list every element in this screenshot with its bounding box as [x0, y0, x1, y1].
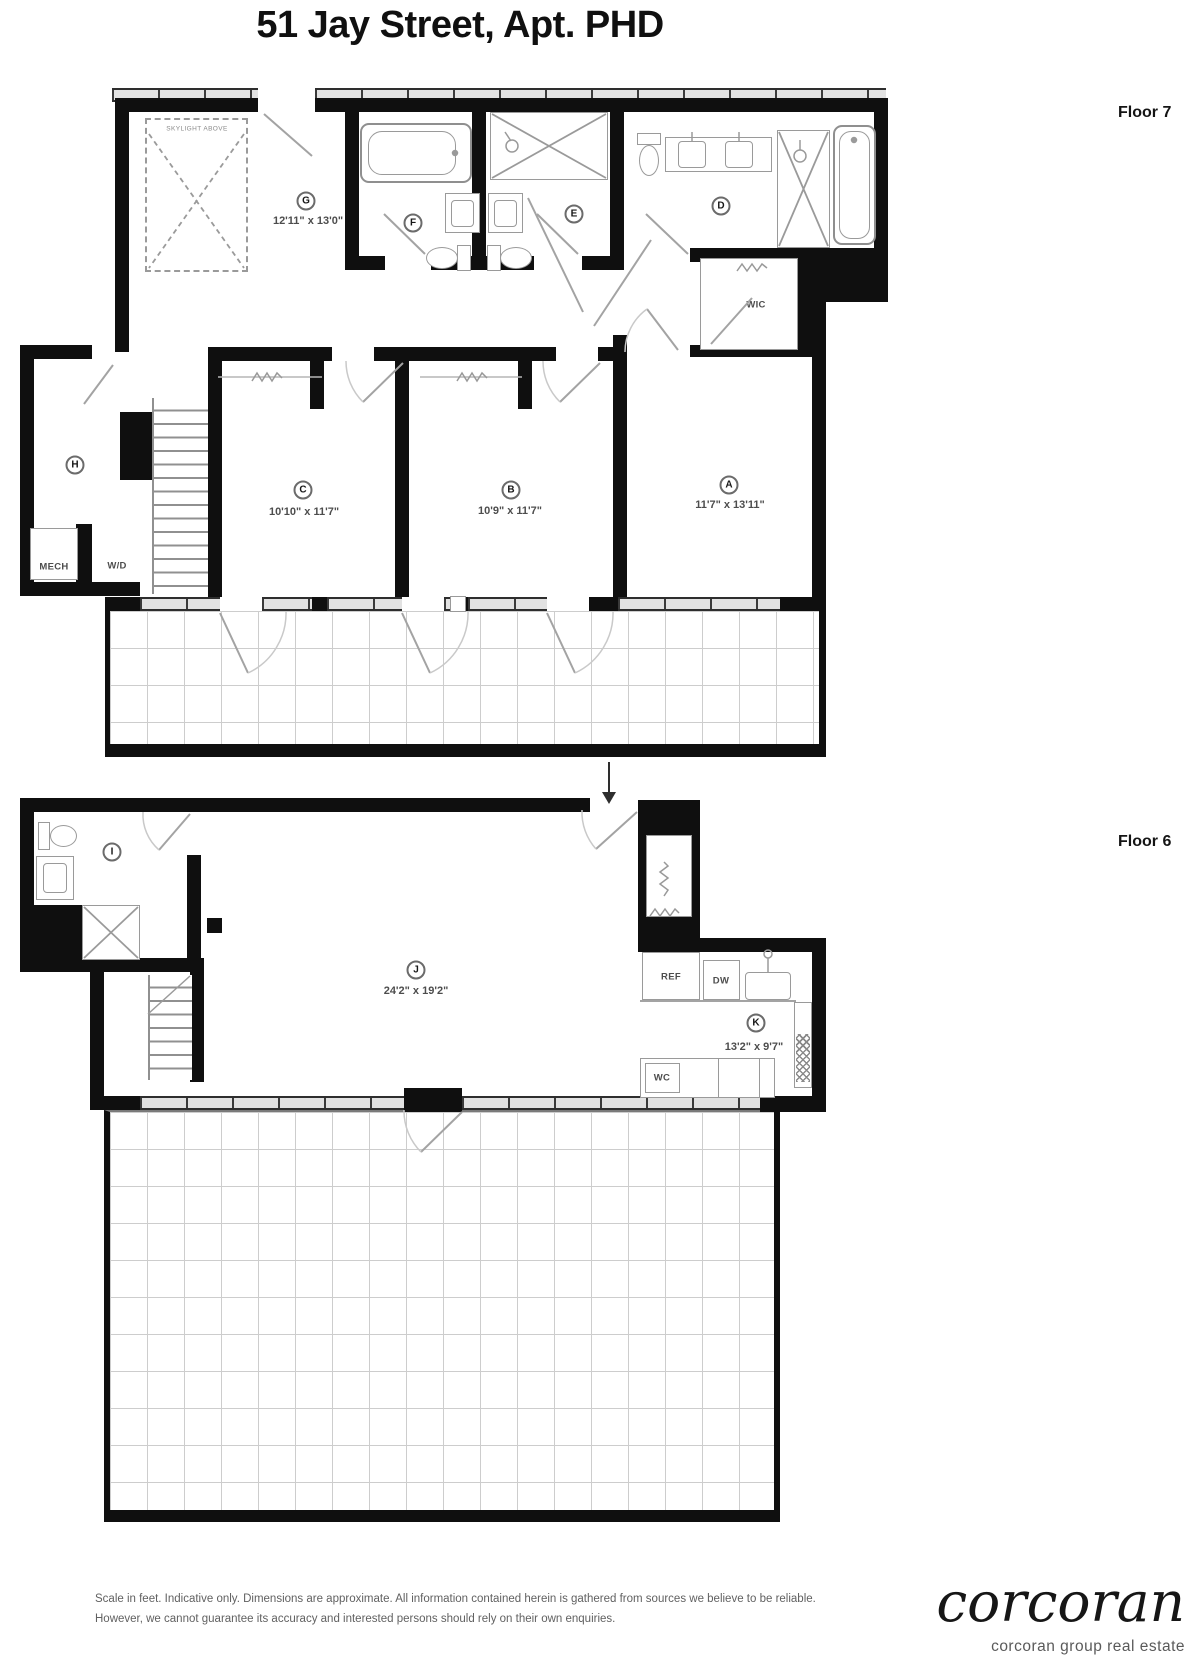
sink-basin [451, 200, 474, 227]
wc-label: WC [654, 1073, 670, 1084]
wall [395, 361, 409, 597]
room-tag-j: J [407, 961, 426, 980]
wall [692, 835, 700, 925]
wall [760, 1096, 826, 1112]
disclaimer: Scale in feet. Indicative only. Dimensio… [95, 1589, 905, 1629]
toilet-bowl [500, 247, 532, 269]
window-band [262, 597, 312, 611]
cooktop [718, 1058, 760, 1098]
floorplan-page: 51 Jay Street, Apt. PHD Floor 7 Floor 6 [0, 0, 1200, 1669]
corcoran-tagline: corcoran group real estate [810, 1638, 1185, 1656]
wall [190, 972, 204, 1082]
wall [120, 412, 152, 480]
room-dims-g: 12'11" x 13'0" [273, 215, 343, 227]
room-tag-a: A [720, 476, 739, 495]
column [450, 596, 466, 612]
skylight-label: SKYLIGHT ABOVE [166, 126, 227, 133]
room-dims-b: 10'9" x 11'7" [478, 505, 542, 517]
room-tag-h: H [66, 456, 85, 475]
shower-shaft [82, 905, 140, 960]
wall [638, 835, 646, 925]
toilet-bowl [426, 247, 458, 269]
room-tag-k: K [747, 1014, 766, 1033]
wall [315, 98, 888, 112]
wall [20, 345, 92, 359]
window-band [327, 597, 402, 611]
wall [404, 1088, 462, 1112]
dw-label: DW [713, 976, 729, 987]
wall [518, 361, 532, 409]
range-hatch [796, 1034, 810, 1082]
room-tag-i: I [103, 843, 122, 862]
wall [826, 248, 888, 302]
wall [20, 812, 34, 958]
wall [20, 958, 204, 972]
page-title: 51 Jay Street, Apt. PHD [30, 4, 890, 47]
window-band [468, 597, 547, 611]
corcoran-logo: corcoran [810, 1572, 1185, 1632]
room-tag-b: B [502, 481, 521, 500]
sink-basin [43, 863, 67, 893]
toilet-tank [38, 822, 50, 850]
wall [115, 112, 129, 352]
level-arrow [602, 762, 616, 804]
room-tag-d: D [712, 197, 731, 216]
wall [374, 347, 556, 361]
toilet-tank [637, 133, 661, 145]
skylight-outline [145, 118, 248, 272]
room-tag-c: C [294, 481, 313, 500]
room-tag-f: F [404, 214, 423, 233]
window-band [140, 597, 220, 611]
wall [589, 597, 618, 611]
wall [472, 112, 486, 270]
room-dims-a: 11'7" x 13'11" [695, 499, 765, 511]
wall [310, 361, 324, 409]
wall [187, 855, 201, 958]
floor6-label: Floor 6 [1118, 833, 1171, 851]
wall [208, 361, 222, 597]
wall [700, 938, 826, 952]
room-tag-e: E [565, 205, 584, 224]
wall [798, 250, 826, 354]
sink-basin [678, 141, 706, 168]
wall [34, 905, 82, 960]
wall [115, 98, 258, 112]
entry-closet [646, 835, 692, 917]
room-tag-g: G [297, 192, 316, 211]
floor7-label: Floor 7 [1118, 104, 1171, 122]
toilet-tank [487, 245, 501, 271]
staircase-floor7 [152, 398, 208, 594]
wall [812, 952, 826, 1110]
window-band [140, 1096, 404, 1110]
wall [638, 915, 700, 952]
wall [780, 597, 826, 611]
wall [76, 524, 92, 596]
wall [105, 597, 140, 611]
disclaimer-line1: Scale in feet. Indicative only. Dimensio… [95, 1589, 905, 1609]
wall [812, 354, 826, 597]
toilet-tank [457, 245, 471, 271]
window-band [462, 1096, 760, 1110]
bathtub-inner [839, 131, 870, 239]
wall [207, 918, 222, 933]
floor7-terrace [105, 611, 826, 757]
wall [638, 800, 700, 835]
wall [610, 112, 624, 270]
sink-basin [725, 141, 753, 168]
counter-edge [640, 1000, 796, 1002]
window-band [618, 597, 780, 611]
shower [490, 112, 608, 180]
wall [312, 597, 327, 611]
wd-label: W/D [107, 561, 126, 572]
mech-label: MECH [39, 562, 68, 573]
wall [20, 798, 590, 812]
wall [582, 256, 610, 270]
ref-label: REF [661, 972, 681, 983]
shower [777, 130, 830, 248]
wall [874, 112, 888, 262]
kitchen-sink [745, 972, 791, 1000]
sink-basin [494, 200, 517, 227]
disclaimer-line2: However, we cannot guarantee its accurac… [95, 1609, 905, 1629]
toilet-bowl [50, 825, 77, 847]
wall [208, 347, 332, 361]
room-dims-j: 24'2" x 19'2" [384, 985, 449, 997]
wall [345, 112, 359, 270]
bathtub-inner [368, 131, 456, 175]
wall [90, 958, 104, 1110]
wic-label: WIC [746, 300, 765, 311]
staircase-floor6 [148, 975, 192, 1080]
wall [359, 256, 385, 270]
floor6-terrace [104, 1110, 780, 1522]
room-dims-c: 10'10" x 11'7" [269, 506, 339, 518]
toilet-bowl [639, 145, 659, 176]
room-dims-k: 13'2" x 9'7" [725, 1041, 783, 1053]
wall [90, 1096, 140, 1110]
wall [613, 335, 627, 597]
